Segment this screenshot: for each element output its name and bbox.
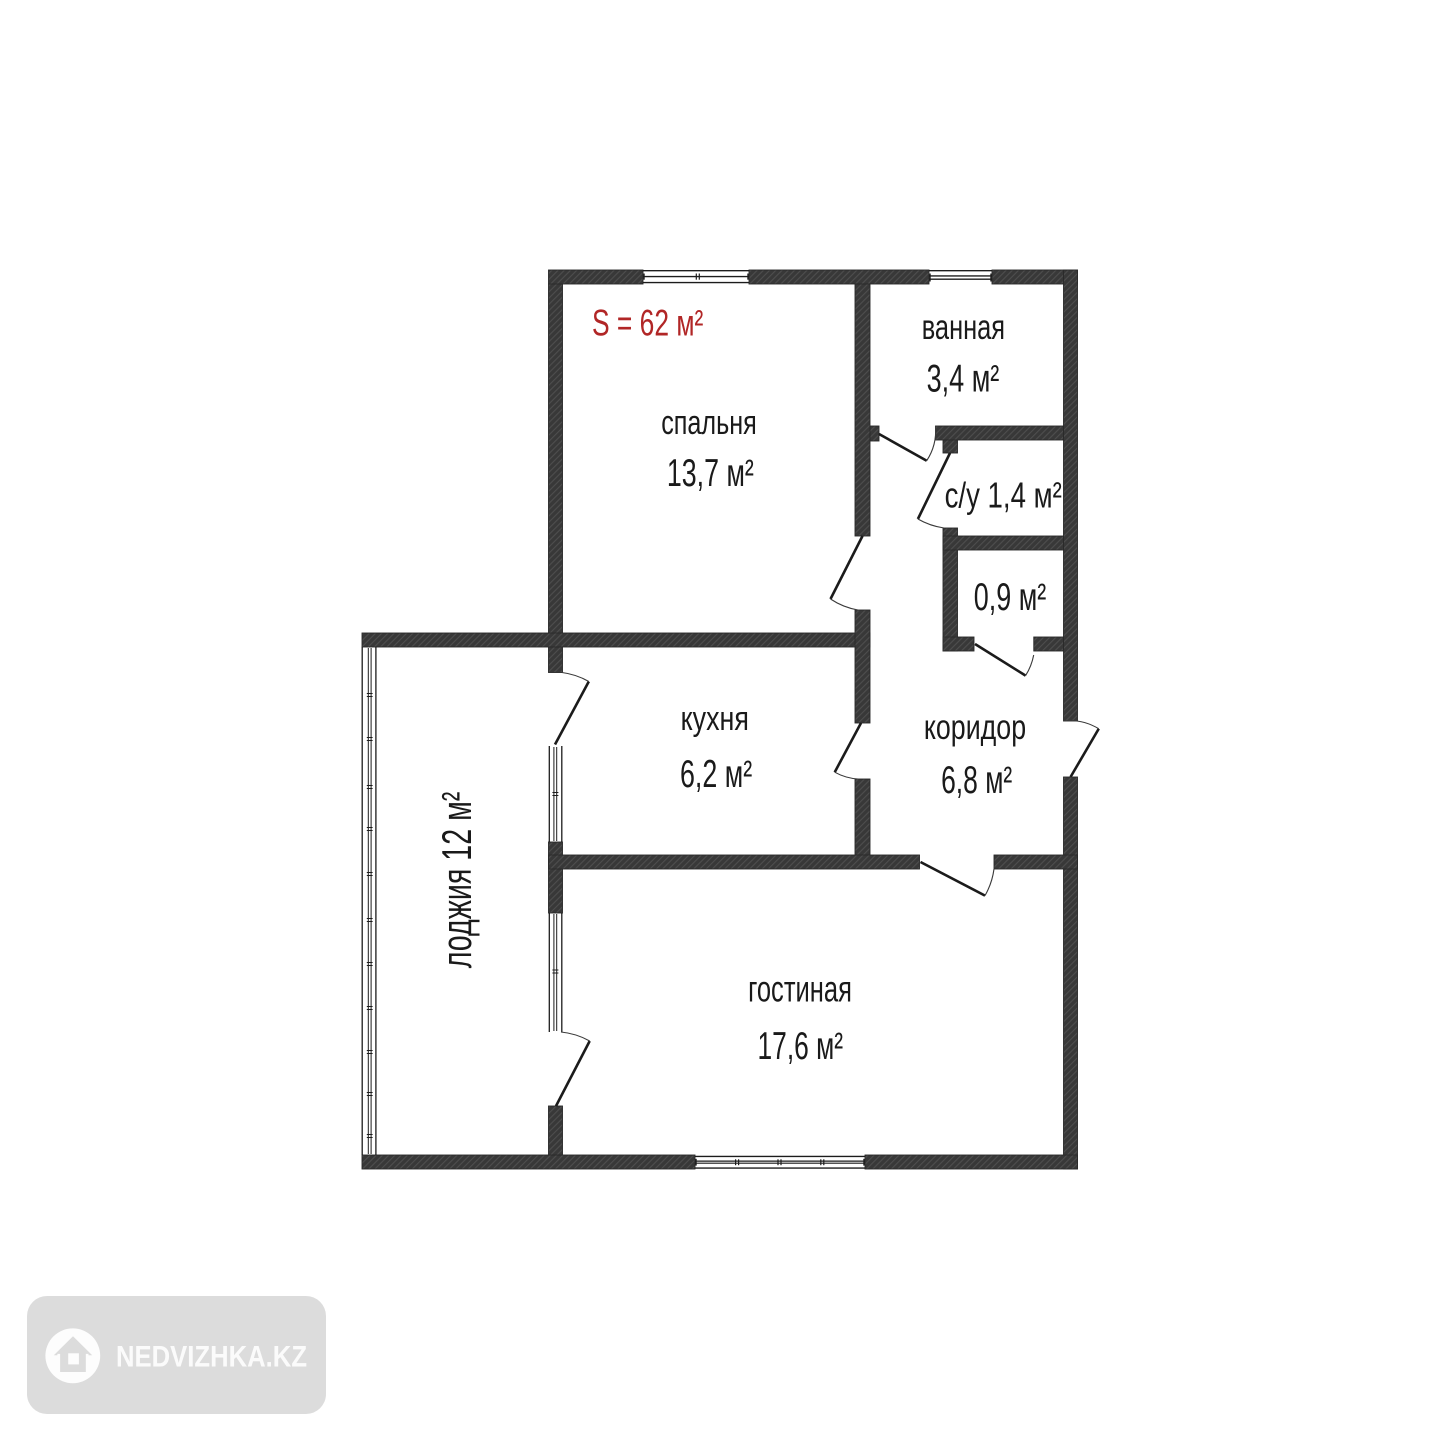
- svg-text:S = 62 м²: S = 62 м²: [592, 303, 703, 344]
- svg-text:спальня: спальня: [661, 404, 757, 442]
- svg-text:13,7 м²: 13,7 м²: [667, 452, 754, 495]
- svg-text:0,9 м²: 0,9 м²: [974, 576, 1047, 619]
- svg-text:лоджия 12 м²: лоджия 12 м²: [433, 792, 480, 969]
- svg-text:кухня: кухня: [681, 700, 749, 738]
- svg-text:6,2 м²: 6,2 м²: [680, 753, 752, 796]
- svg-text:ванная: ванная: [922, 308, 1005, 347]
- svg-text:3,4 м²: 3,4 м²: [927, 358, 1000, 401]
- svg-text:17,6 м²: 17,6 м²: [758, 1025, 844, 1068]
- svg-text:NEDVIZHKA.KZ: NEDVIZHKA.KZ: [116, 1341, 307, 1374]
- svg-text:6,8 м²: 6,8 м²: [941, 759, 1012, 802]
- svg-text:гостиная: гостиная: [748, 969, 852, 1010]
- svg-text:коридор: коридор: [924, 708, 1026, 747]
- svg-text:с/у 1,4 м²: с/у 1,4 м²: [945, 474, 1062, 515]
